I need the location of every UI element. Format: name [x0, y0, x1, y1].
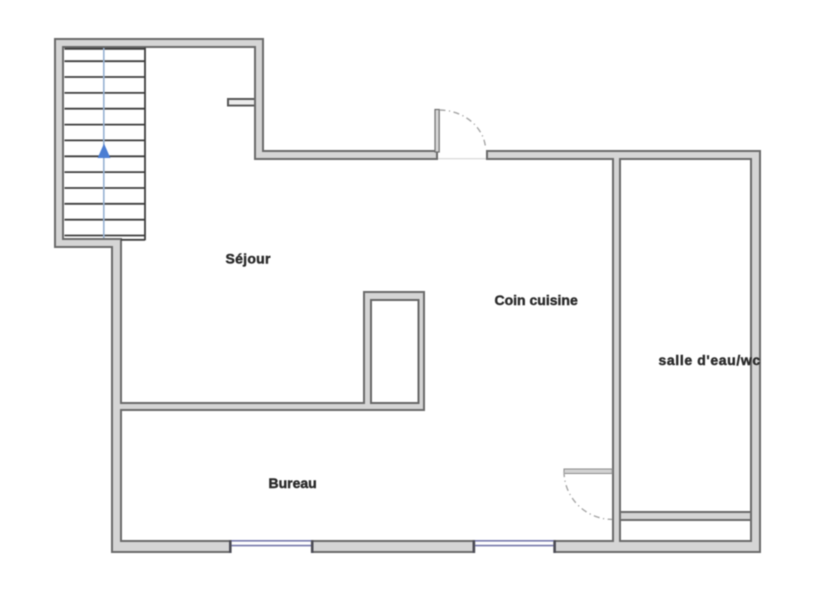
svg-text:Coin cuisine: Coin cuisine	[495, 292, 578, 308]
svg-text:salle d'eau/wc: salle d'eau/wc	[659, 352, 761, 368]
svg-text:Bureau: Bureau	[269, 475, 317, 491]
svg-text:Séjour: Séjour	[226, 251, 272, 267]
